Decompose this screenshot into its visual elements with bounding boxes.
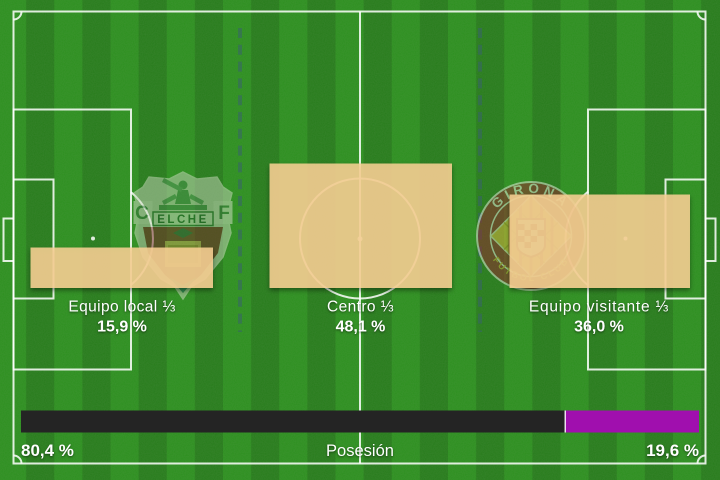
svg-text:Posesión: Posesión — [326, 442, 394, 460]
svg-text:48,1 %: 48,1 % — [336, 319, 386, 336]
svg-text:ELCHE: ELCHE — [157, 214, 208, 226]
svg-text:F: F — [218, 203, 230, 224]
svg-text:Centro ⅓: Centro ⅓ — [327, 298, 394, 315]
svg-text:36,0 %: 36,0 % — [574, 319, 624, 336]
svg-text:C: C — [135, 203, 149, 224]
svg-text:80,4 %: 80,4 % — [21, 441, 74, 460]
svg-text:19,6 %: 19,6 % — [646, 441, 699, 460]
svg-text:Equipo visitante ⅓: Equipo visitante ⅓ — [529, 298, 669, 315]
svg-text:Equipo local ⅓: Equipo local ⅓ — [68, 298, 175, 315]
svg-text:15,9 %: 15,9 % — [97, 319, 147, 336]
